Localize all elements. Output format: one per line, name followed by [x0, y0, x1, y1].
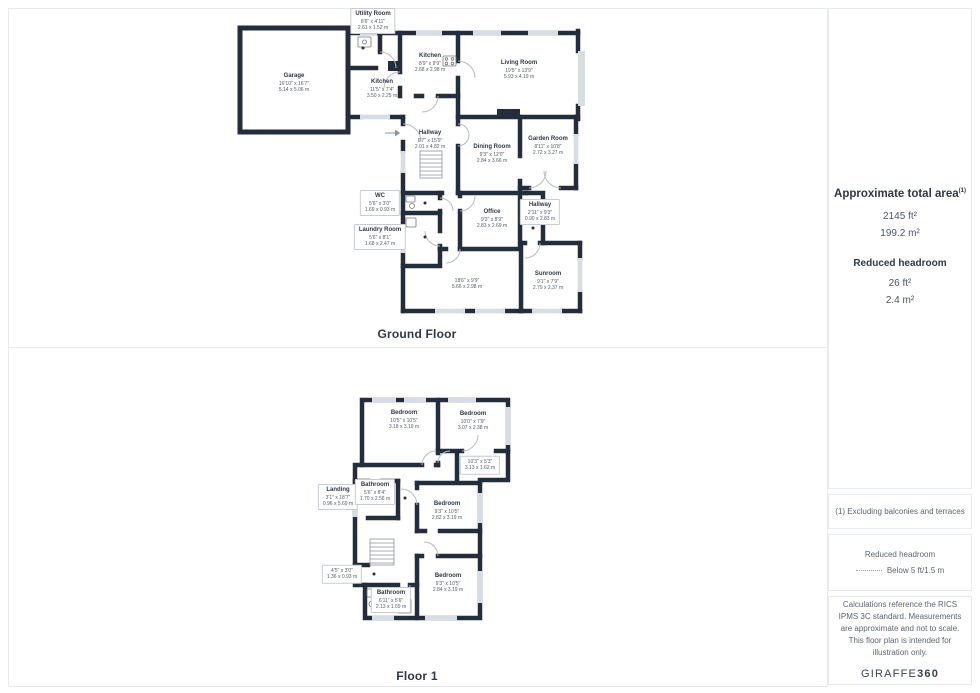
room-name: Bedroom	[433, 573, 463, 581]
legend-card: Reduced headroom Below 5 ft/1.5 m	[828, 534, 972, 591]
room-name: Bedroom	[389, 410, 419, 418]
room-dim-metric: 1.68 x 2.47 m	[359, 241, 401, 247]
room-dim-imperial: 5'6" x 3'0"	[365, 201, 395, 207]
floor-1-plan: Bedroom10'5" x 10'5"3.18 x 3.19 mBedroom…	[310, 393, 515, 628]
room-label: 4'5" x 3'0"1.36 x 0.93 m	[322, 565, 362, 584]
room-dim-metric: 1.70 x 2.56 m	[360, 496, 390, 502]
room-dim-imperial: 8'9" x 9'9"	[415, 61, 445, 67]
room-dim-metric: 3.07 x 2.38 m	[458, 425, 488, 431]
reduced-headroom-m: 2.4 m²	[886, 295, 914, 306]
room-label: Bedroom9'3" x 10'5"2.82 x 3.19 m	[432, 501, 462, 521]
reduced-headroom-title: Reduced headroom	[853, 258, 946, 269]
room-dim-imperial: 9'1" x 7'9"	[533, 279, 563, 285]
room-label: Garden Room8'11" x 10'8"2.72 x 3.27 m	[528, 136, 568, 156]
room-name: Utility Room	[355, 11, 390, 19]
room-label: Bathroom5'6" x 8'4"1.70 x 2.56 m	[355, 479, 395, 505]
room-name: Kitchen	[415, 53, 445, 61]
room-name: Sunroom	[533, 271, 563, 279]
room-label: Kitchen11'5" x 7'4"3.50 x 2.25 m	[367, 79, 397, 99]
room-dim-imperial: 3'1" x 18'7"	[323, 495, 353, 501]
floor-section-divider	[8, 347, 826, 348]
room-dim-metric: 3.18 x 3.19 m	[389, 424, 419, 430]
room-name: Bedroom	[432, 501, 462, 509]
giraffe360-logo: GIRAFFE360	[861, 666, 939, 683]
room-label: Laundry Room5'6" x 8'1"1.68 x 2.47 m	[354, 224, 406, 250]
room-dim-imperial: 10'0" x 7'9"	[458, 419, 488, 425]
total-area-title: Approximate total area(1)	[834, 188, 966, 200]
room-dim-metric: 5.93 x 4.19 m	[501, 74, 537, 80]
room-label: Office9'3" x 8'9"2.83 x 2.69 m	[477, 209, 507, 229]
room-name: Laundry Room	[359, 227, 401, 235]
room-label: Dining Room9'3" x 12'0"2.84 x 3.66 m	[473, 144, 510, 164]
room-dim-metric: 1.69 x 0.93 m	[365, 207, 395, 213]
ground-floor-title: Ground Floor	[8, 327, 826, 341]
room-name: Bedroom	[458, 411, 488, 419]
room-dim-metric: 2.01 x 4.82 m	[415, 144, 445, 150]
room-label: Living Room19'5" x 13'9"5.93 x 4.19 m	[501, 60, 537, 80]
room-name: Garden Room	[528, 136, 568, 144]
room-dim-imperial: 10'5" x 10'5"	[389, 418, 419, 424]
total-area-card: Approximate total area(1) 2145 ft² 199.2…	[828, 8, 972, 489]
room-dim-metric: 3.50 x 2.25 m	[367, 93, 397, 99]
room-label: 18'6" x 9'9"5.66 x 2.98 m	[452, 278, 482, 291]
room-dim-imperial: 9'3" x 8'9"	[477, 217, 507, 223]
stairs	[420, 151, 442, 178]
ground-floor-plan: Garage16'10" x 16'7"5.14 x 5.06 mUtility…	[230, 6, 590, 328]
room-label: 10'3" x 5'3"3.13 x 1.62 m	[460, 456, 500, 475]
room-dim-metric: 2.84 x 3.19 m	[433, 587, 463, 593]
room-label: Landing3'1" x 18'7"0.96 x 5.69 m	[318, 484, 358, 510]
room-label: Kitchen8'9" x 9'9"2.68 x 2.98 m	[415, 53, 445, 73]
room-dim-metric: 2.13 x 1.69 m	[376, 604, 406, 610]
room-dim-metric: 0.96 x 5.69 m	[323, 501, 353, 507]
room-dim-metric: 2.83 x 2.69 m	[477, 223, 507, 229]
room-dim-metric: 2.61 x 1.52 m	[355, 25, 390, 31]
room-dim-metric: 1.36 x 0.93 m	[327, 574, 357, 580]
reduced-headroom-ft: 26 ft²	[889, 278, 912, 289]
room-name: Hallway	[525, 202, 555, 210]
room-label: WC5'6" x 3'0"1.69 x 0.93 m	[360, 190, 400, 216]
entry-arrow-icon	[385, 130, 400, 137]
footnote-card: (1) Excluding balconies and terraces	[828, 494, 972, 529]
footnote-text: (1) Excluding balconies and terraces	[835, 507, 964, 516]
room-dim-imperial: 9'3" x 10'5"	[433, 581, 463, 587]
room-label: Hallway6'7" x 15'9"2.01 x 4.82 m	[415, 130, 445, 150]
room-dim-metric: 5.66 x 2.98 m	[452, 284, 482, 290]
room-name: WC	[365, 193, 395, 201]
legend-value: Below 5 ft/1.5 m	[887, 566, 944, 575]
room-dim-metric: 2.84 x 3.66 m	[473, 158, 510, 164]
room-dim-imperial: 9'3" x 10'5"	[432, 509, 462, 515]
total-area-ft: 2145 ft²	[883, 211, 917, 222]
room-name: Kitchen	[367, 79, 397, 87]
disclaimer-text: Calculations reference the RICS IPMS 3C …	[837, 599, 963, 659]
room-dim-metric: 2.68 x 2.98 m	[415, 67, 445, 73]
room-label: Sunroom9'1" x 7'9"2.79 x 2.37 m	[533, 271, 563, 291]
room-dim-metric: 2.72 x 3.27 m	[528, 150, 568, 156]
disclaimer-card: Calculations reference the RICS IPMS 3C …	[828, 596, 972, 685]
room-name: Garage	[279, 73, 309, 81]
room-dim-metric: 0.90 x 2.83 m	[525, 216, 555, 222]
legend-title: Reduced headroom	[865, 550, 935, 559]
room-dim-imperial: 6'11" x 5'6"	[376, 598, 406, 604]
room-dim-imperial: 2'11" x 9'3"	[525, 210, 555, 216]
floor-1-title: Floor 1	[8, 669, 826, 683]
room-dim-imperial: 16'10" x 16'7"	[279, 81, 309, 87]
room-label: Garage16'10" x 16'7"5.14 x 5.06 m	[279, 73, 309, 93]
room-name: Bathroom	[360, 482, 390, 490]
door-arcs	[380, 52, 561, 263]
room-dim-imperial: 11'5" x 7'4"	[367, 87, 397, 93]
room-dim-imperial: 19'5" x 13'9"	[501, 68, 537, 74]
room-label: Utility Room8'6" x 4'11"2.61 x 1.52 m	[350, 8, 395, 34]
room-dim-metric: 2.79 x 2.37 m	[533, 285, 563, 291]
fireplace	[497, 109, 520, 118]
room-dim-imperial: 5'6" x 8'4"	[360, 490, 390, 496]
room-name: Bathroom	[376, 590, 406, 598]
room-name: Hallway	[415, 130, 445, 138]
room-dim-metric: 3.13 x 1.62 m	[465, 465, 495, 471]
room-label: Bedroom9'3" x 10'5"2.84 x 3.19 m	[433, 573, 463, 593]
total-area-m: 199.2 m²	[880, 228, 919, 239]
room-label: Bedroom10'5" x 10'5"3.18 x 3.19 m	[389, 410, 419, 430]
room-dim-imperial: 6'7" x 15'9"	[415, 138, 445, 144]
reduced-headroom-dash	[856, 570, 882, 571]
room-name: Dining Room	[473, 144, 510, 152]
room-label: Bedroom10'0" x 7'9"3.07 x 2.38 m	[458, 411, 488, 431]
room-label: Hallway2'11" x 9'3"0.90 x 2.83 m	[520, 199, 560, 225]
room-name: Landing	[323, 487, 353, 495]
room-dim-metric: 2.82 x 3.19 m	[432, 515, 462, 521]
footnote-marker: (1)	[959, 188, 966, 194]
room-dim-metric: 5.14 x 5.06 m	[279, 87, 309, 93]
room-name: Living Room	[501, 60, 537, 68]
room-label: Bathroom6'11" x 5'6"2.13 x 1.69 m	[371, 587, 411, 613]
floorplan-page: Garage16'10" x 16'7"5.14 x 5.06 mUtility…	[0, 0, 980, 693]
room-name: Office	[477, 209, 507, 217]
